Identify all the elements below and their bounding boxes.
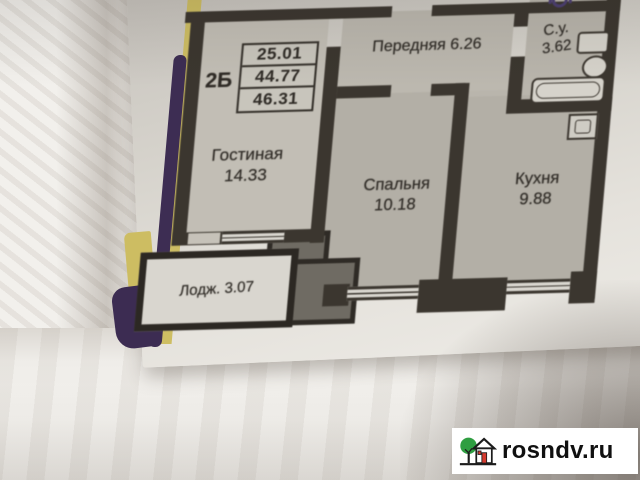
balcony-door-opening xyxy=(187,232,220,244)
unit-area-row: 46.31 xyxy=(238,87,313,111)
bathroom-left-wall-upper xyxy=(514,2,530,26)
kitchen-label: Кухня 9.88 xyxy=(484,167,588,210)
bottom-pier-bedroom-left xyxy=(322,284,350,307)
loggia-label: Лодж. 3.07 xyxy=(179,278,255,301)
bathtub-inner xyxy=(535,81,601,99)
kitchen-area: 9.88 xyxy=(484,187,586,210)
bottom-pier-right-corner xyxy=(568,271,597,304)
entrance-door-mark-icon xyxy=(548,0,574,12)
unit-area-row: 25.01 xyxy=(242,43,317,67)
living-room-label: Гостиная 14.33 xyxy=(174,143,318,188)
hallway-area: 6.26 xyxy=(450,36,483,54)
unit-area-table: 25.01 44.77 46.31 xyxy=(236,41,319,113)
bathtub-icon xyxy=(530,76,606,104)
unit-label: 2Б xyxy=(199,67,239,94)
bedroom-name: Спальня xyxy=(346,173,448,196)
stove-inner xyxy=(574,119,591,133)
watermark-badge: rosndv.ru xyxy=(452,428,638,474)
rosndv-logo-icon xyxy=(459,434,497,468)
living-room-area: 14.33 xyxy=(174,164,316,189)
unit-area-row: 44.77 xyxy=(240,65,315,89)
loggia-outline: Лодж. 3.07 xyxy=(134,248,299,331)
kitchen-window xyxy=(506,279,570,295)
floor-plan: Лодж. 3.07 2Б 25.01 44.77 46.31 Гостиная… xyxy=(120,0,640,356)
living-room-window xyxy=(221,230,284,245)
entrance-door-arc xyxy=(551,0,568,8)
bedroom-top-wall-left xyxy=(336,85,391,99)
bedroom-area: 10.18 xyxy=(344,193,446,216)
stove-icon xyxy=(567,113,599,140)
loggia-area: 3.07 xyxy=(224,278,254,297)
bedroom-label: Спальня 10.18 xyxy=(344,173,448,216)
bedroom-window xyxy=(347,285,419,301)
watermark-text: rosndv.ru xyxy=(502,437,614,465)
bottom-pier-center xyxy=(417,277,508,312)
entrance-door-tick xyxy=(569,0,573,3)
kitchen-name: Кухня xyxy=(486,167,588,190)
loggia-name: Лодж. xyxy=(179,281,221,301)
photo-of-floor-plan: Лодж. 3.07 2Б 25.01 44.77 46.31 Гостиная… xyxy=(0,0,640,480)
hallway-name: Передняя xyxy=(372,37,447,56)
